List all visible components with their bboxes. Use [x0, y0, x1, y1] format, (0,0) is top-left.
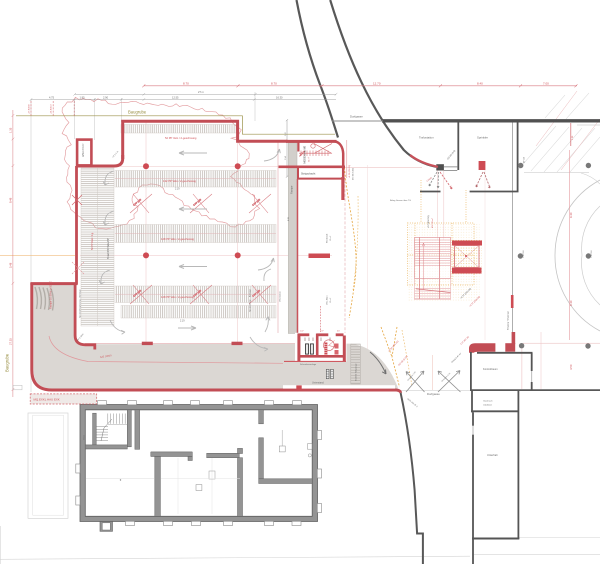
svg-text:457.00 (6.20): 457.00 (6.20) — [353, 168, 355, 180]
svg-text:132 PP Velo / 2-geschossig: 132 PP Velo / 2-geschossig — [163, 179, 196, 183]
svg-text:Eingang Tiefgarage: Eingang Tiefgarage — [507, 310, 510, 330]
svg-text:5.48: 5.48 — [9, 262, 13, 268]
svg-text:0.8: 0.8 — [337, 331, 340, 333]
svg-text:+ 457.60: + 457.60 — [591, 251, 593, 258]
svg-text:1.95: 1.95 — [80, 95, 86, 99]
svg-text:Dorfgasse: Dorfgasse — [350, 115, 363, 119]
svg-text:2.19: 2.19 — [180, 321, 185, 323]
svg-text:Velo-Büro: Velo-Büro — [326, 295, 329, 305]
svg-text:Belag Grenze über TG: Belag Grenze über TG — [390, 199, 411, 202]
svg-text:Sprinkler: Sprinkler — [477, 136, 488, 140]
svg-text:457.00 m²: 457.00 m² — [431, 218, 434, 228]
svg-text:Total 478 Velo-PP: Total 478 Velo-PP — [106, 238, 110, 259]
svg-text:+4.50 (456.50): +4.50 (456.50) — [349, 165, 351, 178]
svg-text:8.40: 8.40 — [477, 82, 483, 86]
svg-text:+56 456.10: +56 456.10 — [51, 104, 53, 114]
svg-text:16.30: 16.30 — [276, 95, 283, 99]
svg-text:40*150: 40*150 — [524, 157, 526, 163]
svg-text:27 m: 27 m — [198, 90, 204, 94]
svg-text:2.90: 2.90 — [103, 95, 109, 99]
svg-text:128 PP Velo / 2-geschossig: 128 PP Velo / 2-geschossig — [161, 295, 194, 299]
svg-text:+ 457.60: + 457.60 — [523, 251, 525, 258]
svg-text:8.70: 8.70 — [271, 82, 277, 86]
svg-text:2.19: 2.19 — [175, 189, 180, 191]
svg-text:7.00: 7.00 — [543, 82, 549, 86]
svg-text:52 PP Velo / 2-g.: 52 PP Velo / 2-g. — [91, 232, 94, 250]
svg-text:2.54: 2.54 — [285, 156, 287, 160]
svg-text:Rampe: Rampe — [290, 185, 294, 194]
svg-text:34 m²: 34 m² — [308, 157, 311, 162]
svg-text:Schrankenanlage: Schrankenanlage — [300, 363, 317, 366]
svg-text:9.46: 9.46 — [9, 197, 13, 203]
svg-text:8.40: 8.40 — [569, 300, 573, 306]
svg-text:4.75: 4.75 — [49, 95, 55, 99]
svg-text:8.70: 8.70 — [183, 82, 189, 86]
svg-text:128 PP Velo / 2-geschossig: 128 PP Velo / 2-geschossig — [161, 237, 194, 241]
svg-text:9.40: 9.40 — [569, 212, 573, 218]
svg-text:WNA 3.5 m²: WNA 3.5 m² — [82, 143, 85, 157]
svg-text:Unterstand: Unterstand — [312, 382, 324, 385]
svg-text:52 PP Velo / 2-geschossig: 52 PP Velo / 2-geschossig — [165, 136, 197, 140]
svg-text:reduktion: reduktion — [483, 404, 493, 407]
svg-text:12.70: 12.70 — [373, 82, 381, 86]
svg-text:10 m²: 10 m² — [329, 298, 332, 303]
svg-text:Trafostation: Trafostation — [419, 136, 434, 140]
svg-text:1.07: 1.07 — [300, 331, 304, 333]
svg-text:MQ.EXKL HAU EXK: MQ.EXKL HAU EXK — [34, 398, 60, 402]
svg-text:Einfahrt Tiefgarage: Einfahrt Tiefgarage — [355, 363, 358, 381]
svg-text:0.97: 0.97 — [320, 331, 324, 333]
svg-text:2.12: 2.12 — [285, 132, 287, 136]
svg-text:+57 (456.50): +57 (456.50) — [428, 215, 430, 228]
svg-text:12.55: 12.55 — [172, 95, 179, 99]
svg-text:4.50: 4.50 — [569, 364, 573, 370]
svg-text:Unterhalt: Unterhalt — [487, 453, 498, 457]
svg-text:Baugrube: Baugrube — [5, 353, 10, 372]
svg-text:Rampe 10.00% L=31.27: Rampe 10.00% L=31.27 — [49, 280, 53, 309]
svg-text:1.35: 1.35 — [9, 127, 13, 133]
svg-text:Spontanbegr. - Anfänge: Spontanbegr. - Anfänge — [249, 288, 252, 312]
svg-text:Werkstatt: Werkstatt — [326, 233, 329, 243]
svg-text:Gastraum: Gastraum — [483, 400, 493, 403]
svg-text:Kontrollraum: Kontrollraum — [483, 367, 498, 371]
svg-text:+57 456.80: +57 456.80 — [29, 104, 31, 114]
svg-text:Baugrube: Baugrube — [128, 110, 147, 115]
svg-text:Spontanbegrünung - Anfänge: Spontanbegrünung - Anfänge — [79, 289, 82, 318]
svg-text:10 m²: 10 m² — [329, 236, 332, 241]
svg-text:Dorfgasse: Dorfgasse — [427, 392, 440, 396]
svg-text:Velostation: Velostation — [279, 291, 282, 302]
svg-text:MOBIDrüsen WB: MOBIDrüsen WB — [304, 145, 307, 163]
svg-text:27.35: 27.35 — [9, 338, 13, 345]
svg-text:Steigschacht: Steigschacht — [301, 173, 316, 176]
